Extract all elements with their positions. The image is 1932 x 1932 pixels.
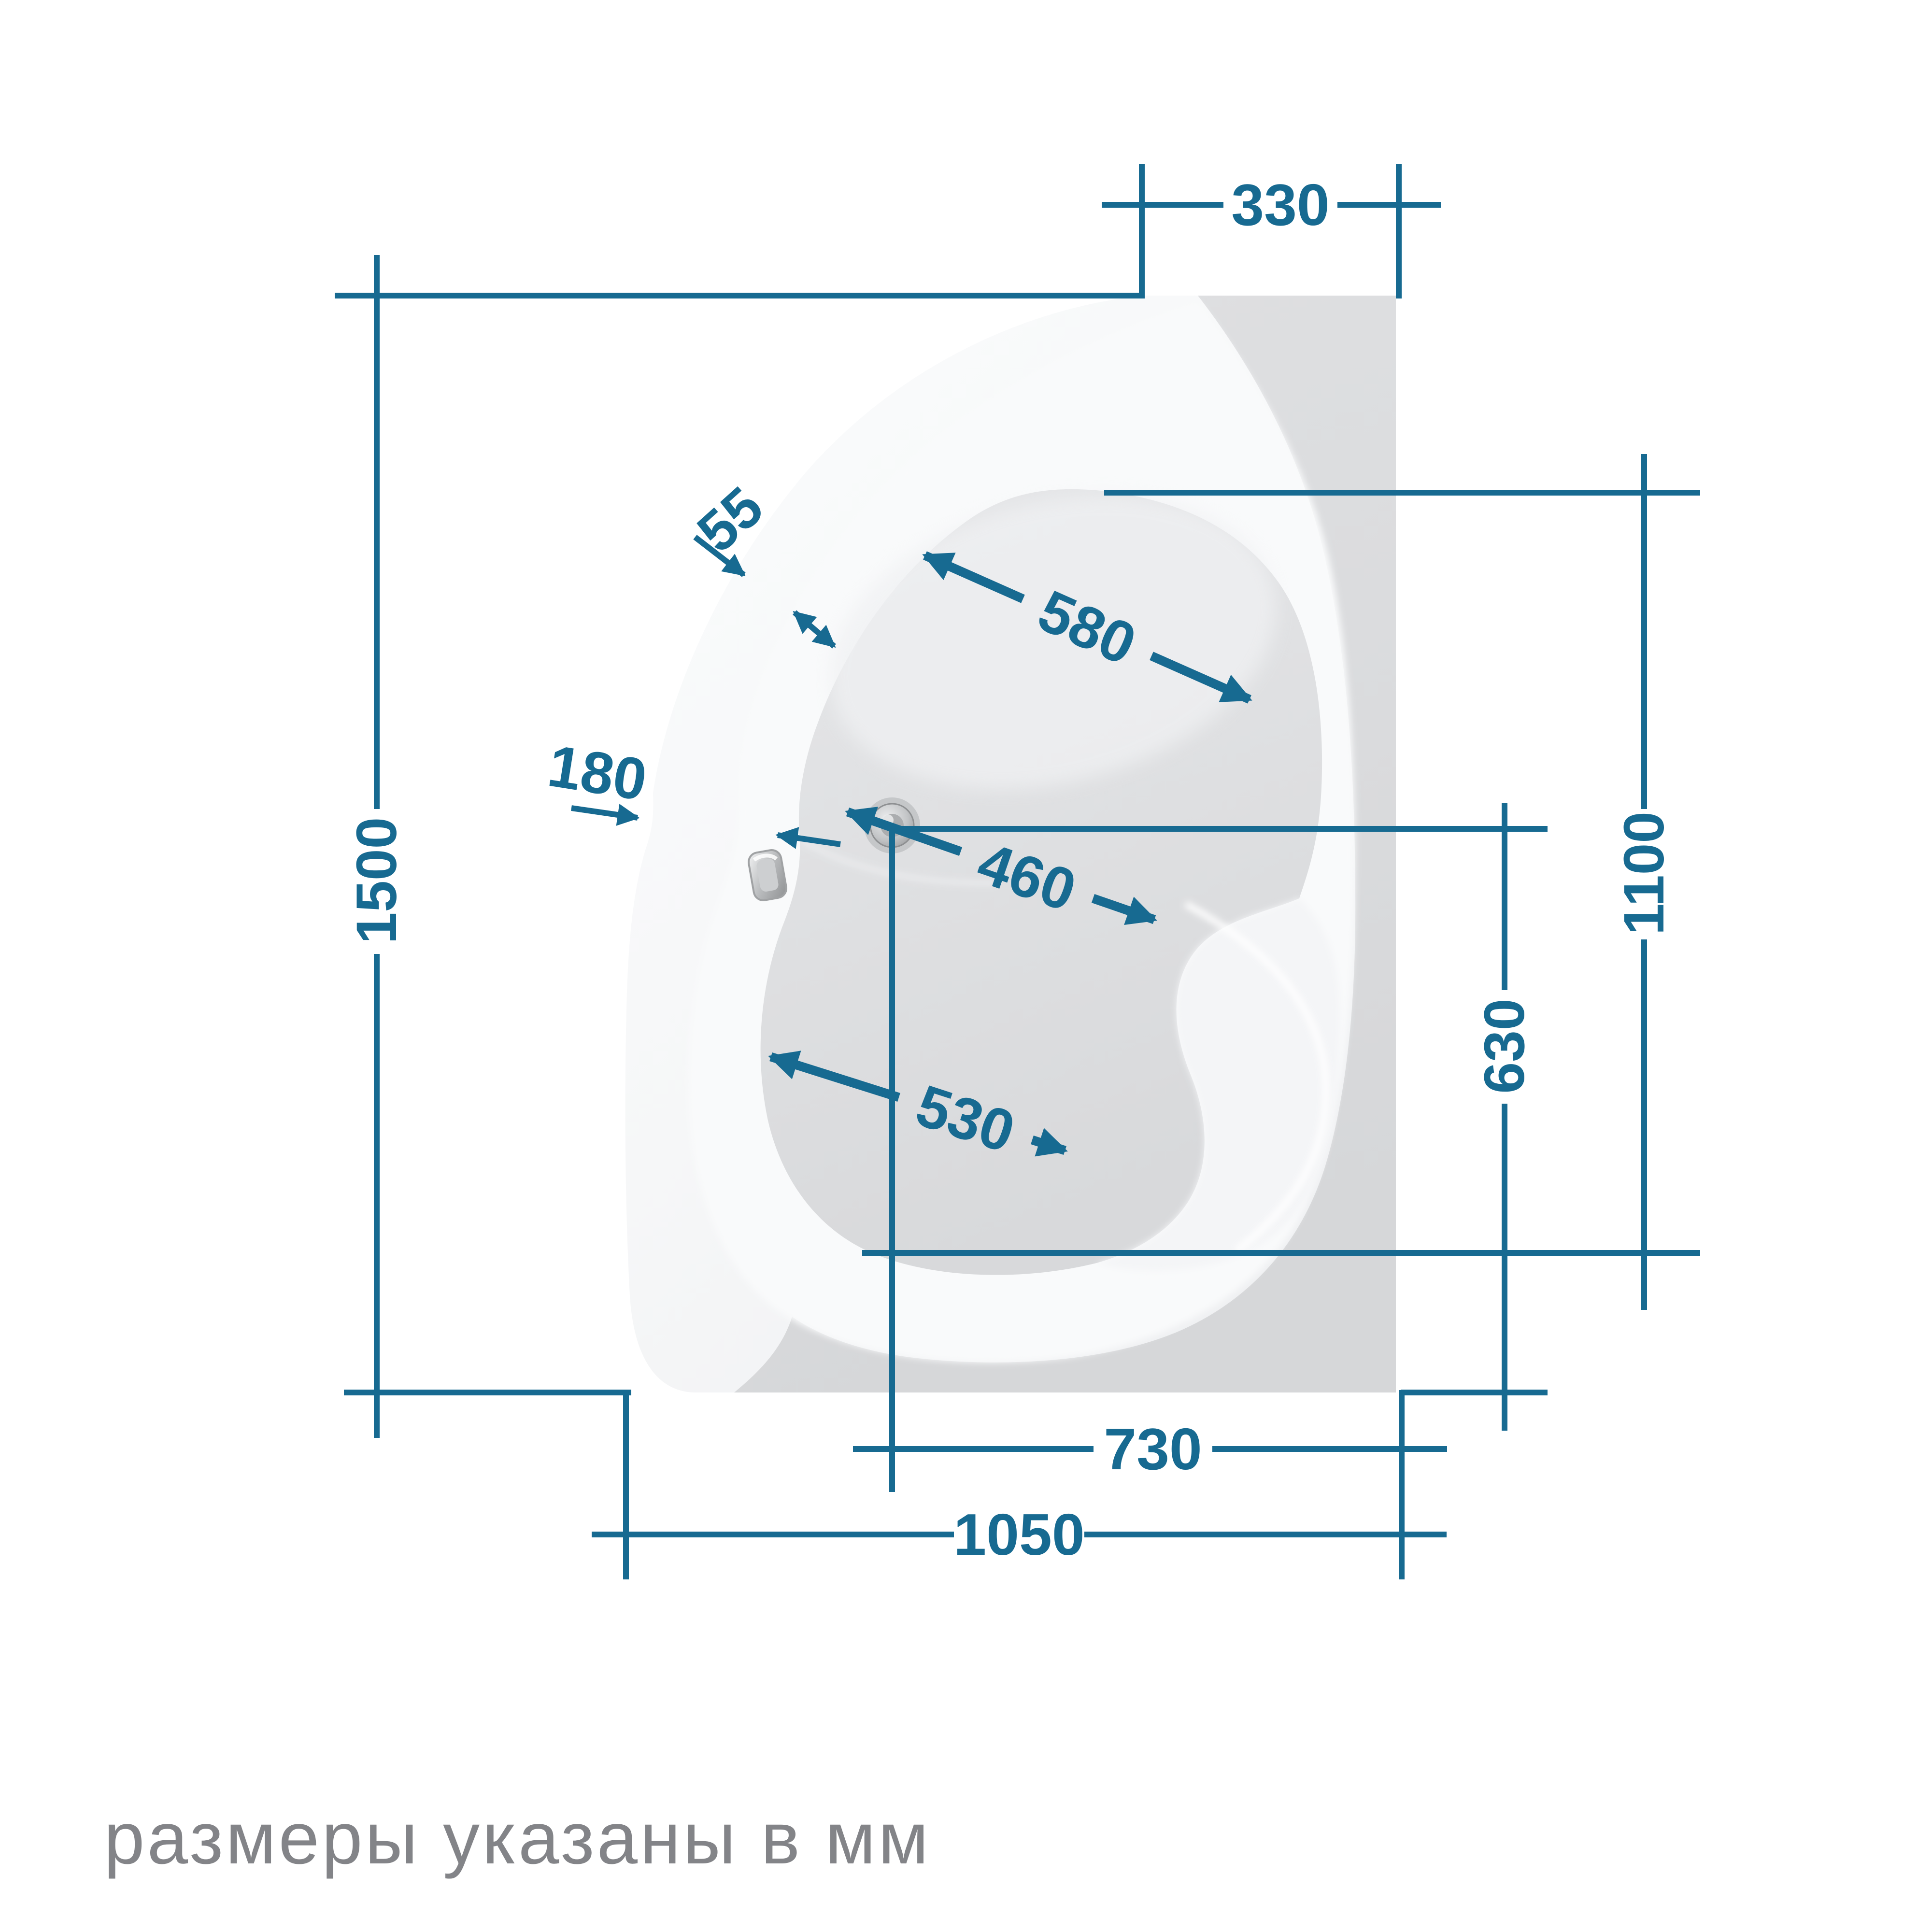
dim-label-1100: 1100 — [1612, 811, 1676, 935]
dim-330: 330 — [1102, 164, 1441, 298]
dim-label-180: 180 — [544, 733, 651, 813]
bathtub-dimension-diagram: 330 1500 1100 630 — [0, 0, 1932, 1932]
units-note: размеры указаны в мм — [104, 1797, 931, 1879]
overflow-icon — [747, 849, 788, 902]
dim-label-630: 630 — [1473, 999, 1536, 1094]
dim-label-1050: 1050 — [953, 1502, 1084, 1567]
dim-730: 730 — [853, 1390, 1447, 1579]
dim-label-1500: 1500 — [345, 817, 409, 944]
dim-1050: 1050 — [592, 1392, 1447, 1579]
dim-label-730: 730 — [1104, 1416, 1202, 1482]
dim-label-330: 330 — [1231, 172, 1330, 238]
